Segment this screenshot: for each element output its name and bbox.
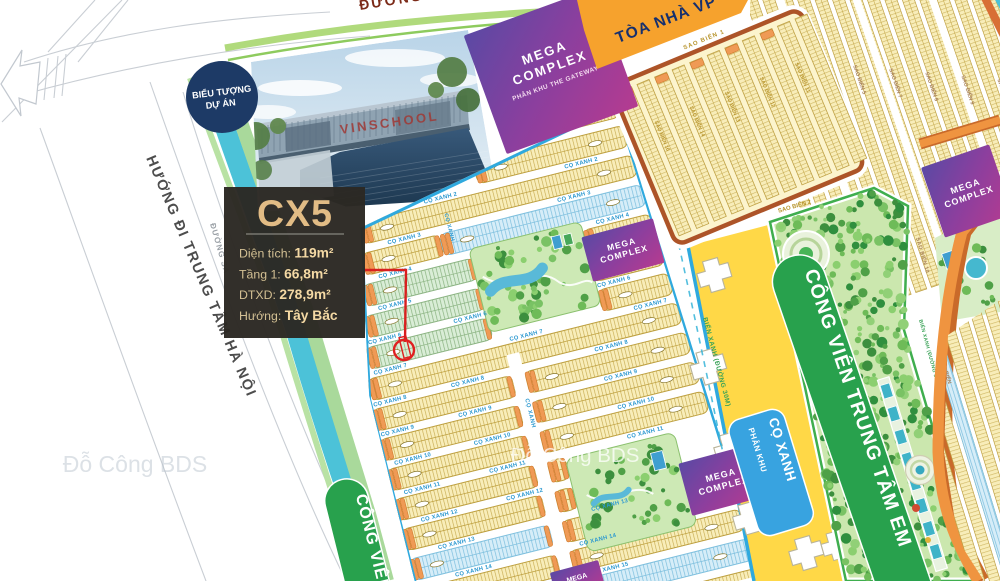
svg-text:Đỗ Công BDS: Đỗ Công BDS: [511, 444, 640, 467]
svg-text:CX5: CX5: [257, 192, 333, 234]
svg-text:Diện tích: 119m²: Diện tích: 119m²: [239, 246, 334, 261]
svg-text:Hướng: Tây Bắc: Hướng: Tây Bắc: [239, 306, 338, 323]
svg-text:DTXD: 278,9m²: DTXD: 278,9m²: [239, 287, 331, 302]
svg-text:Đỗ Công BDS: Đỗ Công BDS: [63, 451, 207, 477]
svg-text:Tầng 1: 66,8m²: Tầng 1: 66,8m²: [239, 266, 328, 281]
